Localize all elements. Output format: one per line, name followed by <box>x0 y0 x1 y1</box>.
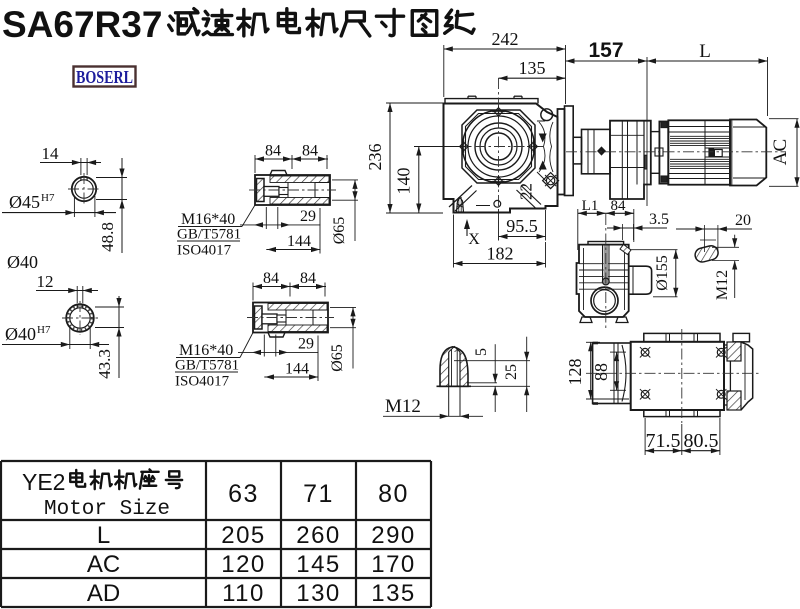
svg-text:140: 140 <box>394 168 414 195</box>
svg-text:SA67R37: SA67R37 <box>2 4 162 45</box>
svg-text:110: 110 <box>222 580 265 607</box>
svg-text:128: 128 <box>565 359 585 386</box>
svg-text:M16*40: M16*40 <box>181 211 235 228</box>
svg-text:135: 135 <box>519 58 546 78</box>
svg-text:63: 63 <box>228 480 259 508</box>
svg-text:120: 120 <box>221 551 266 578</box>
svg-text:14: 14 <box>42 144 60 163</box>
svg-text:H7: H7 <box>37 324 51 336</box>
svg-text:Ø45: Ø45 <box>9 192 40 212</box>
svg-text:Ø155: Ø155 <box>654 255 671 291</box>
svg-text:ISO4017: ISO4017 <box>175 374 230 390</box>
svg-text:130: 130 <box>296 580 341 607</box>
svg-text:84: 84 <box>263 270 279 287</box>
svg-text:144: 144 <box>285 361 309 378</box>
svg-text:43.3: 43.3 <box>95 349 114 379</box>
svg-text:145: 145 <box>296 551 341 578</box>
svg-text:M12: M12 <box>714 270 731 300</box>
svg-text:GB/T5781: GB/T5781 <box>177 227 241 243</box>
svg-text:L1: L1 <box>582 198 599 214</box>
svg-text:L: L <box>699 41 711 62</box>
svg-text:80: 80 <box>378 480 409 508</box>
svg-text:205: 205 <box>221 522 266 549</box>
svg-text:135: 135 <box>371 580 416 607</box>
svg-text:22: 22 <box>517 183 536 200</box>
svg-text:71: 71 <box>303 480 334 508</box>
svg-text:12: 12 <box>37 272 54 291</box>
svg-text:290: 290 <box>371 522 416 549</box>
svg-text:20: 20 <box>735 212 751 229</box>
svg-text:29: 29 <box>298 336 314 353</box>
svg-text:236: 236 <box>365 144 385 171</box>
svg-text:88: 88 <box>591 363 611 381</box>
svg-text:48.8: 48.8 <box>98 222 117 252</box>
svg-text:Ø40: Ø40 <box>7 252 38 272</box>
svg-text:Motor Size: Motor Size <box>44 498 170 521</box>
svg-text:Ø40: Ø40 <box>5 324 36 344</box>
svg-text:AC: AC <box>770 139 791 165</box>
svg-text:GB/T5781: GB/T5781 <box>175 358 239 374</box>
svg-text:144: 144 <box>287 233 311 250</box>
svg-text:25: 25 <box>503 364 520 380</box>
svg-text:AD: AD <box>87 580 120 607</box>
svg-text:X: X <box>468 231 480 248</box>
svg-text:260: 260 <box>296 522 341 549</box>
svg-text:29: 29 <box>300 208 316 225</box>
svg-text:M12: M12 <box>385 396 421 417</box>
svg-text:Ø65: Ø65 <box>331 217 348 245</box>
svg-text:3.5: 3.5 <box>649 211 669 228</box>
svg-text:5: 5 <box>473 348 490 356</box>
svg-text:182: 182 <box>487 244 514 264</box>
svg-text:84: 84 <box>302 143 318 160</box>
svg-text:84: 84 <box>611 198 627 214</box>
svg-text:L: L <box>97 522 110 549</box>
svg-text:Ø65: Ø65 <box>329 344 346 372</box>
svg-text:80.5: 80.5 <box>684 430 719 452</box>
svg-text:84: 84 <box>300 270 316 287</box>
svg-text:170: 170 <box>371 551 416 578</box>
svg-text:M16*40: M16*40 <box>179 342 233 359</box>
svg-text:71.5: 71.5 <box>646 430 681 452</box>
svg-text:AC: AC <box>87 551 120 578</box>
svg-text:BOSERL: BOSERL <box>76 67 133 87</box>
svg-text:YE2: YE2 <box>22 469 65 495</box>
svg-text:84: 84 <box>265 143 281 160</box>
svg-text:ISO4017: ISO4017 <box>177 243 232 259</box>
svg-text:95.5: 95.5 <box>506 216 538 236</box>
svg-text:157: 157 <box>588 39 623 62</box>
svg-text:H7: H7 <box>41 192 55 204</box>
svg-text:242: 242 <box>492 29 519 49</box>
